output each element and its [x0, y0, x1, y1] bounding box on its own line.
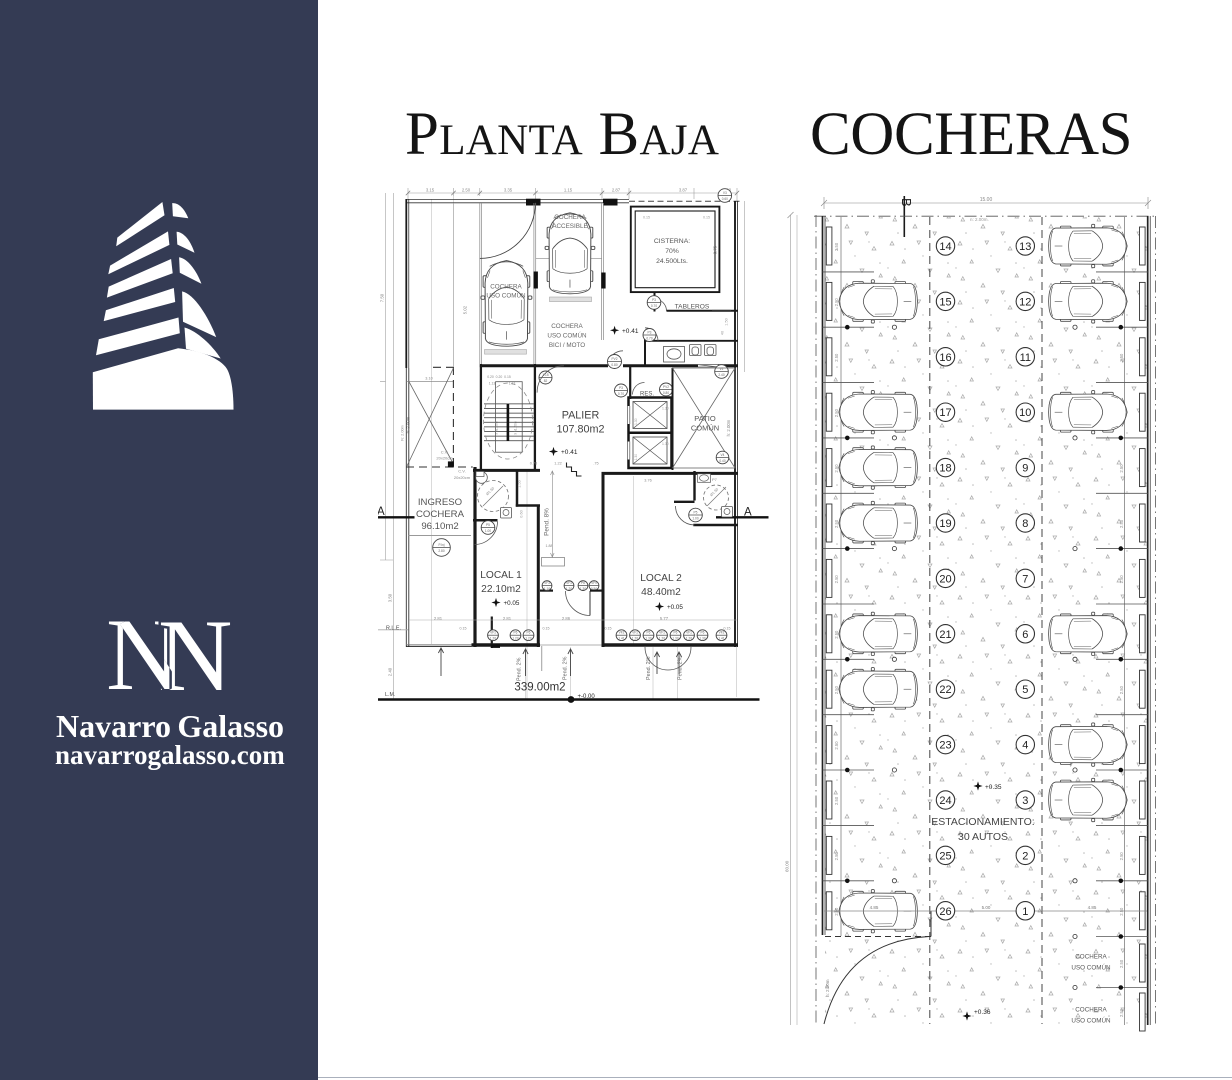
- svg-text:2.50: 2.50: [1119, 852, 1124, 861]
- svg-text:V4: V4: [721, 453, 725, 457]
- svg-text:2.50: 2.50: [834, 852, 839, 861]
- svg-text:2.50: 2.50: [834, 464, 839, 473]
- svg-text:C.V.: C.V.: [441, 450, 448, 455]
- svg-text:1.88: 1.88: [546, 544, 553, 548]
- svg-text:2.50: 2.50: [834, 796, 839, 805]
- svg-text:1.00: 1.00: [692, 516, 698, 520]
- svg-text:VF1: VF1: [490, 631, 496, 635]
- svg-text:INGRESO: INGRESO: [418, 497, 462, 508]
- svg-text:P5: P5: [694, 511, 698, 515]
- svg-text:0.15: 0.15: [724, 627, 731, 631]
- svg-text:24.500Lts.: 24.500Lts.: [656, 258, 688, 265]
- svg-text:9 h1.20m: 9 h1.20m: [495, 421, 499, 435]
- svg-text:P6: P6: [701, 631, 705, 635]
- svg-text:12: 12: [1019, 296, 1031, 308]
- svg-text:Pend. 2%: Pend. 2%: [646, 656, 652, 680]
- svg-text:20x20cm: 20x20cm: [454, 475, 471, 480]
- svg-text:107.80m2: 107.80m2: [556, 424, 604, 436]
- svg-text:0.80: 0.80: [611, 363, 617, 367]
- svg-text:PV2: PV2: [663, 385, 669, 389]
- svg-text:2.50: 2.50: [1119, 685, 1124, 694]
- svg-text:A: A: [744, 507, 752, 519]
- svg-text:6: 6: [1022, 629, 1028, 641]
- svg-text:R.L.E.: R.L.E.: [386, 626, 401, 632]
- svg-text:1.22: 1.22: [554, 462, 561, 466]
- svg-text:1.15: 1.15: [564, 188, 573, 193]
- svg-text:2.50: 2.50: [834, 907, 839, 916]
- svg-text:VF1: VF1: [566, 581, 572, 585]
- svg-text:1.30: 1.30: [662, 407, 669, 411]
- svg-text:1.50: 1.50: [725, 318, 729, 325]
- svg-text:ACCESIBLE: ACCESIBLE: [552, 223, 587, 230]
- svg-text:Pend. 2%: Pend. 2%: [517, 657, 523, 681]
- svg-text:USO COMÚN: USO COMÚN: [1071, 1016, 1111, 1025]
- svg-text:0.15: 0.15: [460, 627, 467, 631]
- svg-text:+0.41: +0.41: [561, 449, 578, 456]
- svg-text:16: 16: [939, 352, 951, 364]
- svg-text:2.40: 2.40: [388, 667, 393, 676]
- svg-text:3.50: 3.50: [388, 593, 393, 602]
- svg-text:1.20: 1.20: [632, 637, 638, 641]
- svg-text:1.00: 1.00: [485, 529, 491, 533]
- svg-text:2.50: 2.50: [834, 242, 839, 251]
- svg-text:C.V.: C.V.: [458, 469, 465, 474]
- svg-text:2.50: 2.50: [834, 408, 839, 417]
- svg-text:h: 2.00m: h: 2.00m: [726, 419, 731, 436]
- svg-text:7: 7: [1022, 573, 1028, 585]
- svg-text:+0.41: +0.41: [622, 328, 639, 335]
- svg-text:5.00: 5.00: [982, 905, 991, 910]
- svg-text:13: 13: [1019, 241, 1031, 253]
- svg-text:1.30: 1.30: [634, 418, 638, 425]
- svg-text:1.30: 1.30: [699, 637, 705, 641]
- svg-text:20x20cm: 20x20cm: [436, 456, 453, 461]
- svg-text:0.80: 0.80: [663, 391, 669, 395]
- svg-text:5.02: 5.02: [463, 305, 468, 314]
- svg-text:1.55: 1.55: [518, 480, 522, 487]
- svg-text:0.70: 0.70: [651, 304, 657, 308]
- svg-text:1.30: 1.30: [580, 587, 586, 591]
- svg-text:2.87: 2.87: [612, 188, 621, 193]
- svg-text:VF2: VF2: [619, 631, 625, 635]
- svg-text:2.50: 2.50: [1119, 464, 1124, 473]
- svg-text:2: 2: [1022, 850, 1028, 862]
- svg-text:48.40m2: 48.40m2: [641, 587, 681, 598]
- svg-text:96.10m2: 96.10m2: [421, 521, 458, 532]
- svg-text:0.78: 0.78: [530, 462, 537, 466]
- svg-text:2.50: 2.50: [834, 575, 839, 584]
- svg-text:1.30: 1.30: [672, 637, 678, 641]
- svg-text:VF2: VF2: [719, 631, 725, 635]
- svg-text:RES.: RES.: [640, 392, 654, 398]
- svg-text:P6: P6: [514, 631, 518, 635]
- svg-text:P6: P6: [527, 631, 531, 635]
- svg-text:+0.05: +0.05: [504, 600, 520, 607]
- svg-text:PV2: PV2: [611, 357, 617, 361]
- svg-text:7.50: 7.50: [380, 293, 385, 302]
- svg-text:VF1: VF1: [632, 631, 638, 635]
- svg-text:25: 25: [939, 850, 951, 862]
- svg-text:Ø1.50: Ø1.50: [485, 486, 495, 496]
- svg-text:+0.36: +0.36: [974, 1009, 991, 1016]
- svg-text:40: 40: [721, 331, 725, 335]
- svg-text:30 AUTOS: 30 AUTOS: [958, 831, 1008, 843]
- svg-text:L.M.: L.M.: [385, 692, 395, 698]
- svg-text:1.13: 1.13: [509, 382, 516, 386]
- svg-text:9 h1.20m: 9 h1.20m: [514, 421, 518, 435]
- svg-text:Pend. 2%: Pend. 2%: [678, 656, 684, 680]
- svg-text:N: 2.00m: N: 2.00m: [401, 425, 405, 440]
- svg-text:2.50: 2.50: [834, 353, 839, 362]
- svg-text:1.30: 1.30: [645, 637, 651, 641]
- svg-text:2.50: 2.50: [834, 685, 839, 694]
- svg-text:CISTERNA:: CISTERNA:: [654, 238, 690, 245]
- svg-text:15.00: 15.00: [980, 197, 993, 203]
- svg-text:2.50: 2.50: [1119, 959, 1124, 968]
- svg-text:2.40: 2.40: [718, 373, 724, 377]
- svg-text:BICI / MOTO: BICI / MOTO: [549, 342, 585, 349]
- svg-text:2.50: 2.50: [834, 519, 839, 528]
- svg-text:P3: P3: [619, 386, 623, 390]
- svg-text:ESTACIONAMIENTO:: ESTACIONAMIENTO:: [931, 816, 1034, 828]
- svg-text:P3: P3: [652, 298, 656, 302]
- svg-text:n: 2.00m.: n: 2.00m.: [970, 217, 989, 222]
- svg-text:P6: P6: [674, 631, 678, 635]
- svg-text:19: 19: [939, 518, 951, 530]
- svg-text:A: A: [378, 506, 385, 518]
- svg-text:0.15: 0.15: [643, 216, 650, 220]
- svg-text:1.41: 1.41: [718, 637, 724, 641]
- svg-text:0.15: 0.15: [543, 627, 550, 631]
- svg-text:1.20: 1.20: [659, 637, 665, 641]
- svg-text:0.20 0.20 0.15: 0.20 0.20 0.15: [487, 375, 511, 379]
- svg-text:3.76: 3.76: [644, 479, 651, 483]
- svg-text:2.50: 2.50: [834, 298, 839, 307]
- svg-text:60.00: 60.00: [785, 860, 790, 872]
- svg-text:0.15: 0.15: [605, 627, 612, 631]
- svg-text:3.35: 3.35: [504, 188, 513, 193]
- svg-text:COCHERA: COCHERA: [554, 214, 586, 221]
- svg-text:1.30: 1.30: [634, 454, 638, 461]
- svg-text:24: 24: [939, 795, 951, 807]
- svg-text:2.80: 2.80: [438, 549, 444, 553]
- svg-text:+0.05: +0.05: [667, 604, 683, 611]
- svg-text:P3: P3: [648, 331, 652, 335]
- svg-text:1.20: 1.20: [686, 637, 692, 641]
- svg-text:V3: V3: [723, 191, 727, 195]
- svg-text:14: 14: [939, 241, 951, 253]
- svg-text:P6: P6: [647, 631, 651, 635]
- svg-text:COCHERA: COCHERA: [490, 284, 522, 291]
- svg-text:0.60: 0.60: [722, 197, 728, 201]
- svg-text:5: 5: [1022, 684, 1028, 696]
- svg-text:LOCAL 1: LOCAL 1: [480, 570, 522, 581]
- svg-text:COCHERA: COCHERA: [1075, 1007, 1107, 1014]
- svg-text:.75: .75: [593, 462, 598, 466]
- svg-text:1.20: 1.20: [490, 637, 496, 641]
- svg-text:COMÚN: COMÚN: [691, 424, 719, 433]
- svg-text:VF1: VF1: [659, 631, 665, 635]
- svg-text:21: 21: [939, 629, 951, 641]
- svg-text:B: B: [899, 198, 914, 207]
- svg-text:9: 9: [1022, 463, 1028, 475]
- svg-text:15: 15: [939, 296, 951, 308]
- svg-text:0.70: 0.70: [646, 336, 652, 340]
- svg-text:4.85: 4.85: [1088, 905, 1097, 910]
- svg-text:Pend. 8%: Pend. 8%: [544, 508, 551, 536]
- svg-text:20: 20: [939, 573, 951, 585]
- svg-text:3.15: 3.15: [426, 188, 435, 193]
- svg-text:0.40: 0.40: [719, 459, 725, 463]
- svg-text:3.10: 3.10: [425, 377, 432, 381]
- svg-text:18: 18: [939, 463, 951, 475]
- svg-text:339.00m2: 339.00m2: [514, 682, 565, 694]
- svg-text:26: 26: [939, 906, 951, 918]
- svg-text:P6: P6: [581, 581, 585, 585]
- svg-text:P5: P5: [486, 523, 490, 527]
- svg-text:USO COMÚN: USO COMÚN: [486, 291, 526, 300]
- svg-text:2.50: 2.50: [1119, 575, 1124, 584]
- svg-text:P7: P7: [712, 477, 718, 482]
- svg-text:2.50: 2.50: [1119, 519, 1124, 528]
- svg-text:1.13: 1.13: [489, 382, 496, 386]
- svg-text:1.20: 1.20: [566, 587, 572, 591]
- svg-text:LOCAL 2: LOCAL 2: [640, 573, 682, 584]
- svg-text:3: 3: [1022, 795, 1028, 807]
- svg-text:USO COMÚN: USO COMÚN: [1071, 963, 1111, 972]
- svg-text:3.87: 3.87: [679, 188, 688, 193]
- svg-text:1.30: 1.30: [662, 442, 669, 446]
- svg-text:COCHERA: COCHERA: [416, 509, 465, 520]
- svg-text:70%: 70%: [665, 248, 679, 255]
- svg-text:2.50: 2.50: [1119, 907, 1124, 916]
- svg-text:USO COMÚN: USO COMÚN: [547, 331, 587, 340]
- svg-text:COCHERA: COCHERA: [1075, 954, 1107, 961]
- svg-text:VFx: VFx: [591, 581, 597, 585]
- svg-text:+0.35: +0.35: [985, 784, 1002, 791]
- svg-text:TABLEROS: TABLEROS: [675, 304, 710, 311]
- svg-text:22.10m2: 22.10m2: [481, 584, 521, 595]
- svg-text:2.50: 2.50: [834, 741, 839, 750]
- svg-text:11: 11: [1020, 352, 1031, 364]
- svg-text:PATIO: PATIO: [694, 414, 716, 423]
- svg-text:8: 8: [1022, 518, 1028, 530]
- svg-text:4.85: 4.85: [870, 905, 879, 910]
- svg-text:0.15: 0.15: [703, 216, 710, 220]
- svg-text:17: 17: [939, 407, 951, 419]
- svg-text:22: 22: [939, 684, 951, 696]
- svg-text:2.50: 2.50: [1119, 1008, 1124, 1017]
- svg-text:2.50: 2.50: [1119, 353, 1124, 362]
- svg-text:23: 23: [939, 740, 951, 752]
- svg-text:0.60: 0.60: [520, 510, 524, 517]
- svg-text:1.20: 1.20: [525, 637, 531, 641]
- svg-text:VF1: VF1: [686, 631, 692, 635]
- svg-text:PALIER: PALIER: [562, 410, 600, 422]
- svg-text:2.50: 2.50: [462, 188, 471, 193]
- svg-text:+-0.00: +-0.00: [578, 694, 596, 700]
- svg-text:2.50: 2.50: [834, 630, 839, 639]
- svg-text:1.41: 1.41: [618, 637, 624, 641]
- svg-text:h: 2.00m: h: 2.00m: [825, 979, 830, 997]
- svg-text:82: 82: [544, 379, 548, 383]
- svg-text:1.10: 1.10: [544, 587, 550, 591]
- svg-text:Pend. 2%: Pend. 2%: [563, 656, 569, 680]
- svg-text:10: 10: [1019, 407, 1031, 419]
- svg-text:P.Inj: P.Inj: [439, 543, 445, 547]
- svg-text:0.70: 0.70: [618, 392, 624, 396]
- svg-text:1.20: 1.20: [512, 637, 518, 641]
- svg-text:COCHERA: COCHERA: [551, 323, 583, 330]
- svg-text:VF3: VF3: [544, 581, 550, 585]
- svg-text:4: 4: [1022, 740, 1028, 752]
- svg-text:1: 1: [1022, 906, 1028, 918]
